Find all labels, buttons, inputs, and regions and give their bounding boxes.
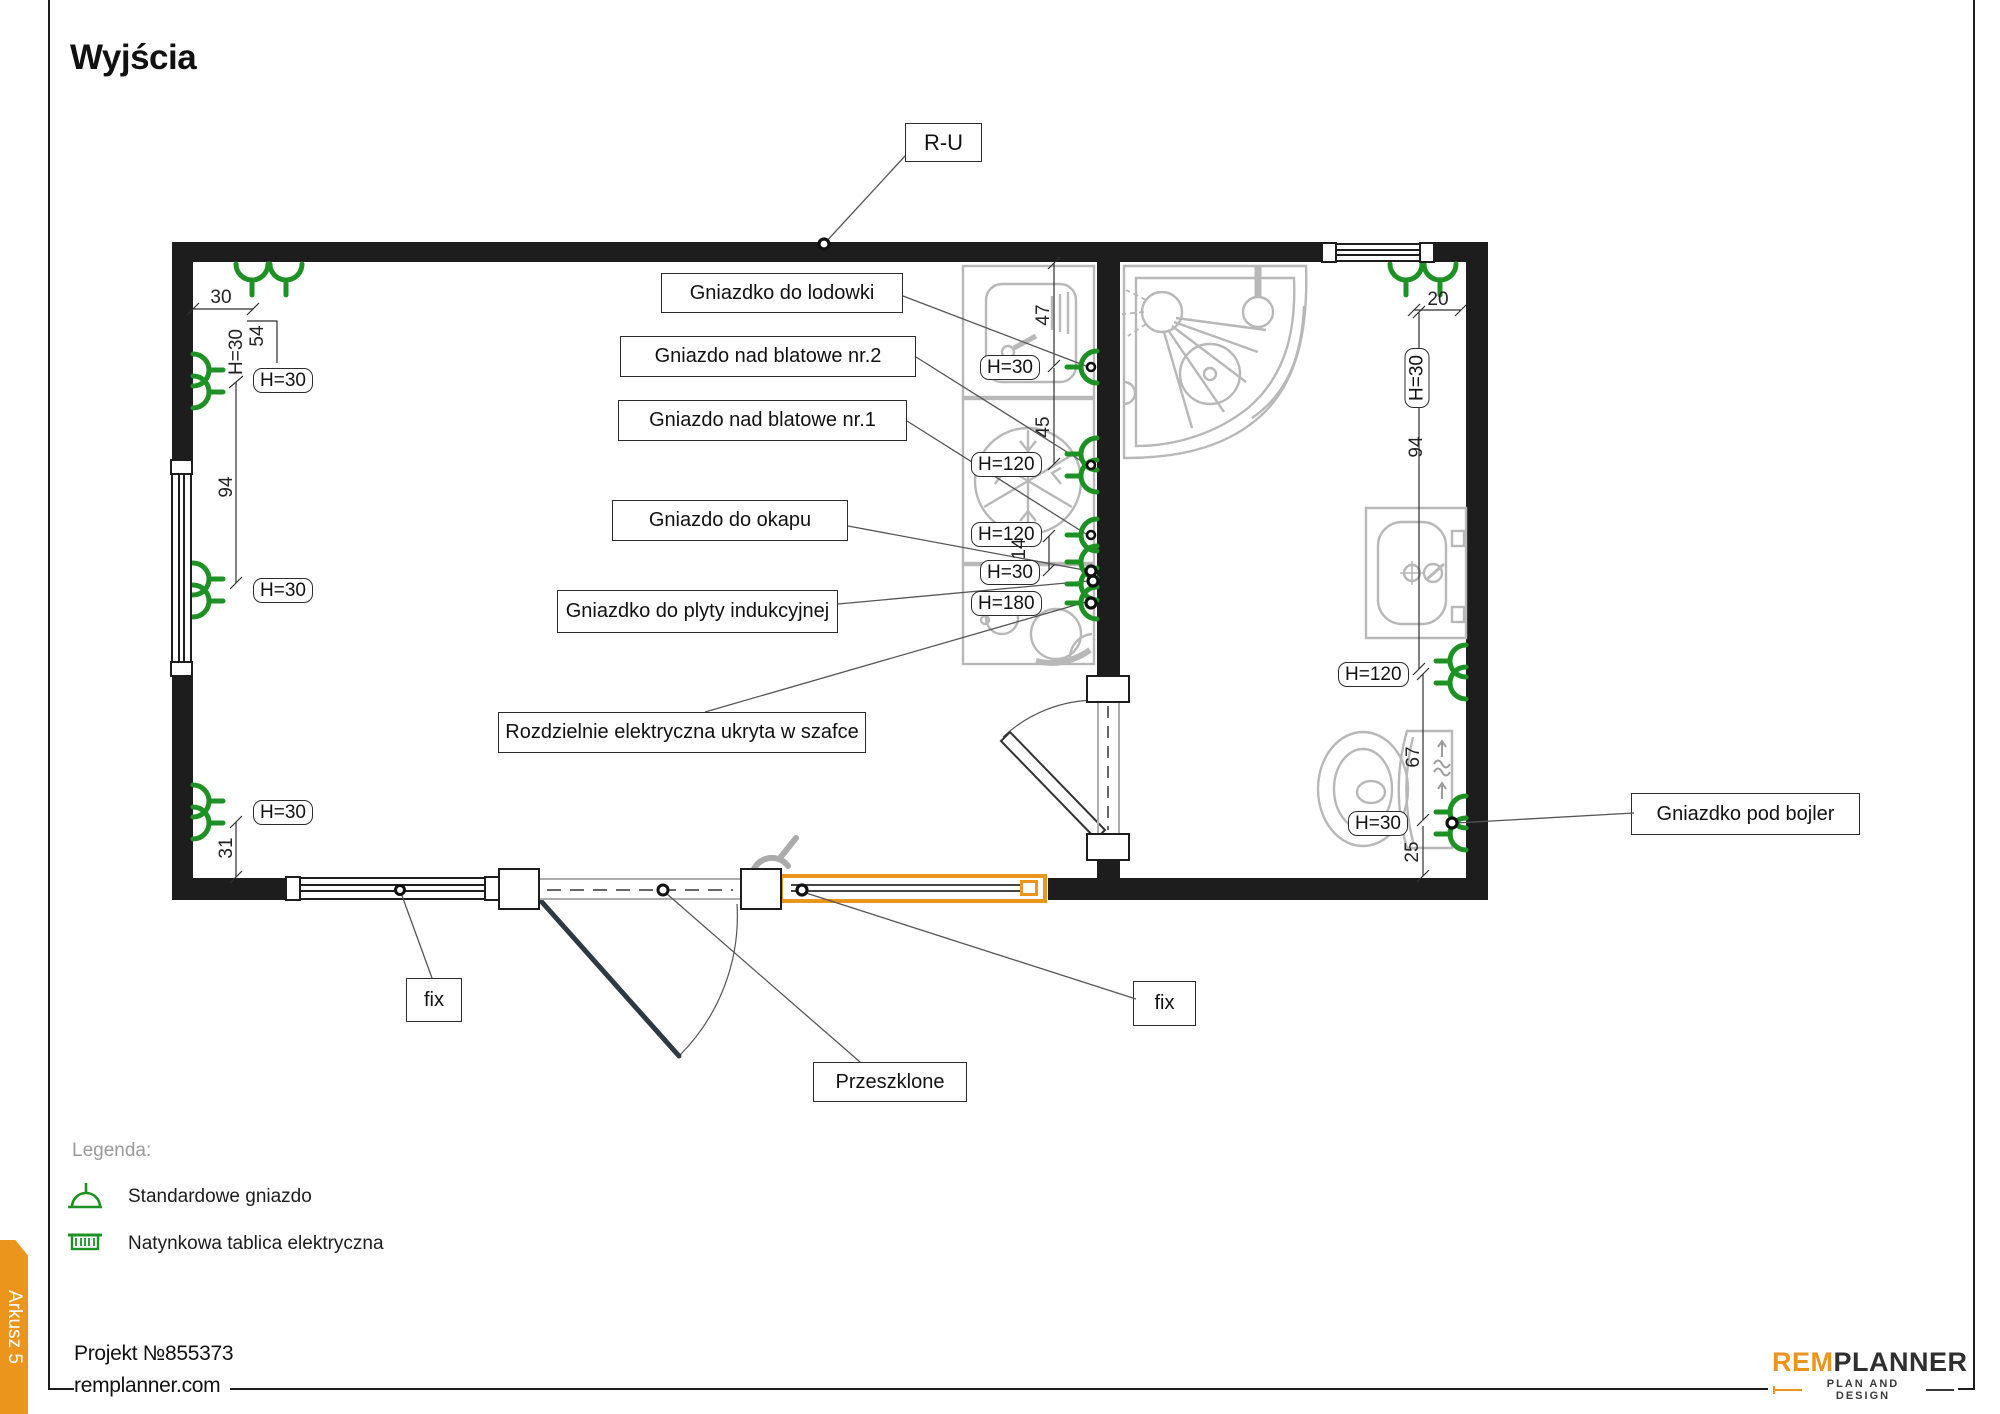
- logo-tagline: PLAN AND DESIGN: [1807, 1378, 1918, 1402]
- sheet-tab[interactable]: Arkusz 5: [0, 1240, 28, 1414]
- junction-dot: [1087, 461, 1095, 469]
- junction-dot: [1086, 566, 1096, 576]
- junction-dot: [1088, 576, 1098, 586]
- junction-dot: [797, 885, 807, 895]
- sheet: Wyjścia: [0, 0, 2000, 1414]
- website-link[interactable]: remplanner.com: [74, 1374, 230, 1398]
- logo-dec-left-icon: [1772, 1386, 1802, 1394]
- junction-dots: [396, 239, 1458, 895]
- junction-dot: [1087, 363, 1095, 371]
- sheet-tab-label: Arkusz 5: [3, 1290, 25, 1364]
- junction-dot: [658, 885, 668, 895]
- junction-dot: [396, 886, 405, 895]
- project-number: Projekt №855373: [74, 1342, 243, 1366]
- plan-overlay: [0, 0, 2000, 1414]
- logo-rem: REM: [1772, 1347, 1834, 1377]
- logo-planner: PLANNER: [1834, 1347, 1968, 1377]
- logo-dec-right-icon: [1924, 1386, 1954, 1394]
- junction-dot: [1087, 531, 1095, 539]
- junction-dot: [1447, 818, 1457, 828]
- junction-dot: [1086, 598, 1096, 608]
- junction-dot: [819, 239, 829, 249]
- outer-leaders: [401, 156, 1634, 1062]
- remplanner-logo: REMPLANNER PLAN AND DESIGN: [1768, 1346, 1958, 1404]
